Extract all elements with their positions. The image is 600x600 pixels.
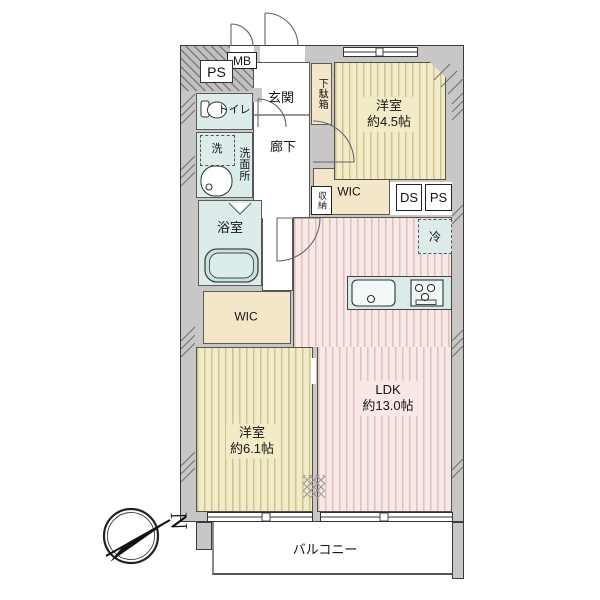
label-getabako: 下駄箱: [315, 78, 328, 110]
balcony-wall-right: [452, 522, 464, 579]
floor-plan: MB PS 収納 DS PS 冷: [0, 0, 600, 600]
label-room45: 洋室 約4.5帖: [363, 97, 415, 132]
compass: N: [104, 509, 191, 563]
label-room61-name: 洋室: [230, 425, 274, 441]
compass-needle-line: [106, 520, 170, 556]
label-toilet: トイレ: [218, 104, 251, 118]
label-washer: 洗: [212, 143, 223, 157]
label-ldk: LDK 約13.0帖: [358, 381, 417, 416]
window-bottom-right: [320, 512, 453, 522]
genkan-step-line: [254, 114, 309, 116]
compass-needle: [110, 520, 170, 562]
label-room61-size: 約6.1帖: [230, 441, 274, 457]
label-room45-size: 約4.5帖: [367, 114, 411, 130]
door-pocket-hatch: [303, 475, 325, 498]
duct-space: DS: [396, 184, 422, 211]
pipe-space-top: PS: [200, 60, 233, 83]
label-room61: 洋室 約6.1帖: [226, 424, 278, 459]
label-senmenjo: 洗面所: [236, 147, 250, 182]
storage-shunou: 収納: [311, 186, 332, 215]
label-shunou: 収納: [317, 191, 326, 210]
refrigerator-space: 冷: [418, 219, 452, 254]
label-wic-center: WIC: [337, 185, 360, 200]
label-ldk-size: 約13.0帖: [362, 398, 413, 414]
label-balcony: バルコニー: [293, 542, 358, 558]
label-ps-right: PS: [430, 191, 447, 204]
compass-circle: [104, 509, 158, 563]
kitchen-counter: [347, 276, 452, 310]
label-ds: DS: [400, 191, 418, 204]
meter-box-door-arc: [231, 24, 253, 46]
room-ldk-lower: [317, 347, 452, 512]
label-wic-left: WIC: [234, 310, 257, 325]
label-fridge: 冷: [429, 231, 441, 243]
wall-stub: [253, 88, 262, 102]
entrance-door-arc: [265, 13, 298, 46]
balcony-wall-step: [196, 522, 212, 550]
hall-stub: [262, 218, 293, 291]
window-bottom-left: [207, 512, 313, 522]
pipe-space-right: PS: [425, 184, 452, 211]
label-genkan: 玄関: [268, 90, 294, 106]
label-rouka: 廊下: [270, 139, 296, 155]
entrance-opening: [260, 46, 305, 63]
sliding-door-opening: [311, 358, 316, 384]
window-top: [343, 47, 418, 57]
label-ps-top: PS: [207, 65, 226, 79]
room-bathroom: [198, 200, 262, 286]
label-mb: MB: [233, 55, 251, 67]
label-yokushitsu: 浴室: [217, 220, 243, 236]
label-room45-name: 洋室: [367, 98, 411, 114]
label-ldk-name: LDK: [362, 382, 413, 398]
